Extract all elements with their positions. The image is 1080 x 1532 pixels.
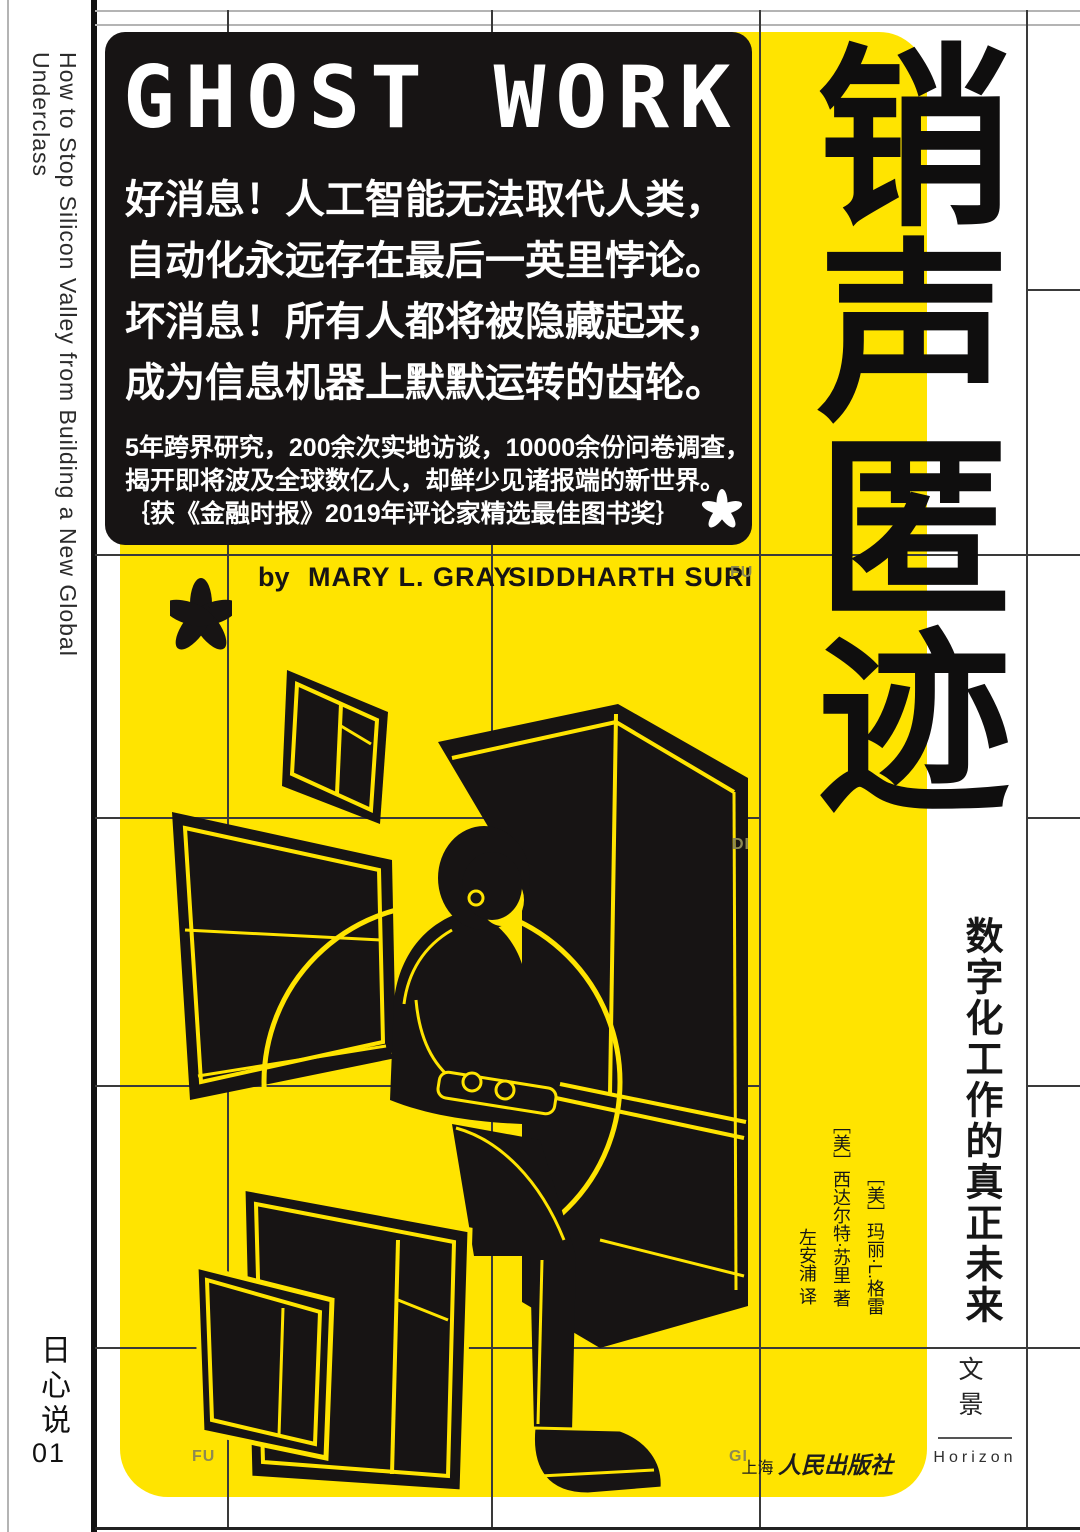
monitor-top-icon [282,670,388,824]
imprint-en: Horizon [933,1449,1017,1467]
grid-row-4b [1027,1085,1080,1087]
credit-author-1: ［美］玛丽·L.格雷 [858,1168,892,1356]
flower-asterisk-icon [170,578,232,656]
monitor-left-icon [172,812,396,1100]
imprint-divider [938,1437,1012,1439]
monitor-bottom-left-icon [196,1266,332,1458]
credit-translator: 左安浦 译 [790,1228,824,1356]
credits-block: ［美］玛丽·L.格雷 ［美］西达尔特·苏里 著 左安浦 译 [790,1116,892,1356]
main-title: 销声匿迹 [799,36,994,816]
publisher-name: 上海 人民出版社 [733,1446,893,1480]
publisher-script: 人民出版社 [778,1452,893,1479]
grid-row-1 [1027,289,1080,291]
grid-row-top-2 [95,24,1080,26]
worker-shoe [533,1428,662,1494]
imprint-cn: 文景 [951,1356,987,1426]
subline-block: 5年跨界研究，200余次实地访谈，10000余份问卷调查， 揭开即将波及全球数亿… [125,432,750,531]
byline-author-2: SIDDHARTH SURI [508,562,753,593]
publisher-prefix: 上海 [742,1458,774,1477]
headline-line: 自动化永远存在最后一英里悖论。 [125,231,725,292]
grid-row-top-1 [95,10,1080,12]
byline-author-1: MARY L. GRAY [308,562,513,593]
page-edge-line [7,0,9,1532]
subline: 揭开即将波及全球数亿人，却鲜少见诸报端的新世界。 [125,465,750,498]
scatter-letter-di: DI [732,836,750,854]
info-box: GHOST WORK 好消息！人工智能无法取代人类， 自动化永远存在最后一英里悖… [105,32,752,545]
scatter-letter-fu-top: FU [730,564,753,582]
white-asterisk-icon [702,488,742,532]
spine-divider-line [91,0,97,1532]
scatter-letter-fu-bottom: FU [192,1448,215,1466]
book-cover: How to Stop Silicon Valley from Building… [0,0,1080,1532]
credit-author-2: ［美］西达尔特·苏里 著 [824,1116,858,1356]
subtitle: 数字化工作的真正未来 [953,916,1008,1326]
headline-line: 坏消息！所有人都将被隐藏起来， [125,292,725,353]
series-name: 日心说 [30,1334,74,1439]
series-number: 01 [32,1438,66,1469]
headline-block: 好消息！人工智能无法取代人类， 自动化永远存在最后一英里悖论。 坏消息！所有人都… [125,170,725,414]
ghost-work-logo: GHOST WORK [123,48,741,148]
grid-row-3b [1027,817,1080,819]
grid-row-bottom [95,1527,1080,1530]
byline-by: by [258,562,290,593]
grid-col-4 [1026,10,1028,1528]
subline: 5年跨界研究，200余次实地访谈，10000余份问卷调查， [125,432,750,465]
subline: ｛获《金融时报》2019年评论家精选最佳图书奖｝ [125,498,750,531]
headline-line: 成为信息机器上默默运转的齿轮。 [125,353,725,414]
headline-line: 好消息！人工智能无法取代人类， [125,170,725,231]
spine-subtitle-en: How to Stop Silicon Valley from Building… [27,52,81,752]
